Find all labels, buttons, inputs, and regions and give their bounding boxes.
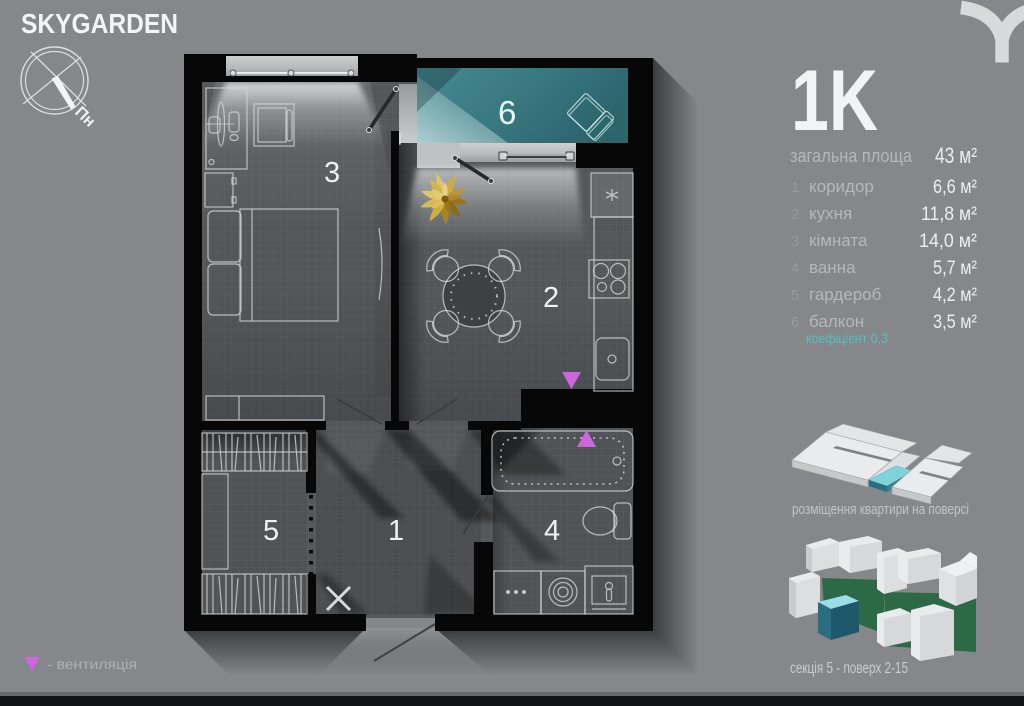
svg-text:1: 1	[388, 515, 404, 547]
svg-text:кімната: кімната	[809, 231, 868, 250]
svg-text:коридор: коридор	[809, 177, 874, 196]
svg-text:SKYGARDEN: SKYGARDEN	[21, 8, 178, 39]
svg-text:балкон: балкон	[809, 312, 864, 331]
svg-text:- вентиляція: - вентиляція	[47, 656, 137, 672]
svg-text:4: 4	[791, 260, 799, 277]
svg-text:гардероб: гардероб	[809, 285, 882, 304]
svg-text:1: 1	[791, 179, 799, 196]
svg-text:4: 4	[544, 515, 560, 547]
svg-text:1K: 1K	[791, 53, 878, 149]
svg-text:3: 3	[324, 157, 340, 189]
svg-text:43 м²: 43 м²	[935, 143, 977, 168]
svg-text:5: 5	[263, 515, 279, 547]
svg-text:5: 5	[791, 287, 799, 304]
svg-text:4,2 м²: 4,2 м²	[933, 284, 977, 306]
svg-text:11,8 м²: 11,8 м²	[921, 203, 977, 225]
svg-text:3,5 м²: 3,5 м²	[933, 311, 977, 333]
svg-text:3: 3	[791, 233, 799, 250]
svg-text:загальна площа: загальна площа	[790, 146, 913, 166]
svg-text:6: 6	[791, 314, 799, 331]
svg-text:2: 2	[543, 282, 559, 314]
svg-text:14,0 м²: 14,0 м²	[919, 230, 977, 252]
svg-text:ванна: ванна	[809, 258, 856, 277]
svg-text:коефіцієнт 0,3: коефіцієнт 0,3	[806, 331, 888, 346]
svg-text:кухня: кухня	[809, 204, 852, 223]
svg-text:6: 6	[498, 94, 516, 131]
svg-text:6,6 м²: 6,6 м²	[933, 176, 977, 198]
svg-text:розміщення квартири на поверсі: розміщення квартири на поверсі	[792, 501, 969, 518]
svg-text:секція 5 - поверх 2-15: секція 5 - поверх 2-15	[790, 660, 908, 677]
svg-text:2: 2	[791, 206, 799, 223]
svg-text:5,7 м²: 5,7 м²	[933, 257, 977, 279]
